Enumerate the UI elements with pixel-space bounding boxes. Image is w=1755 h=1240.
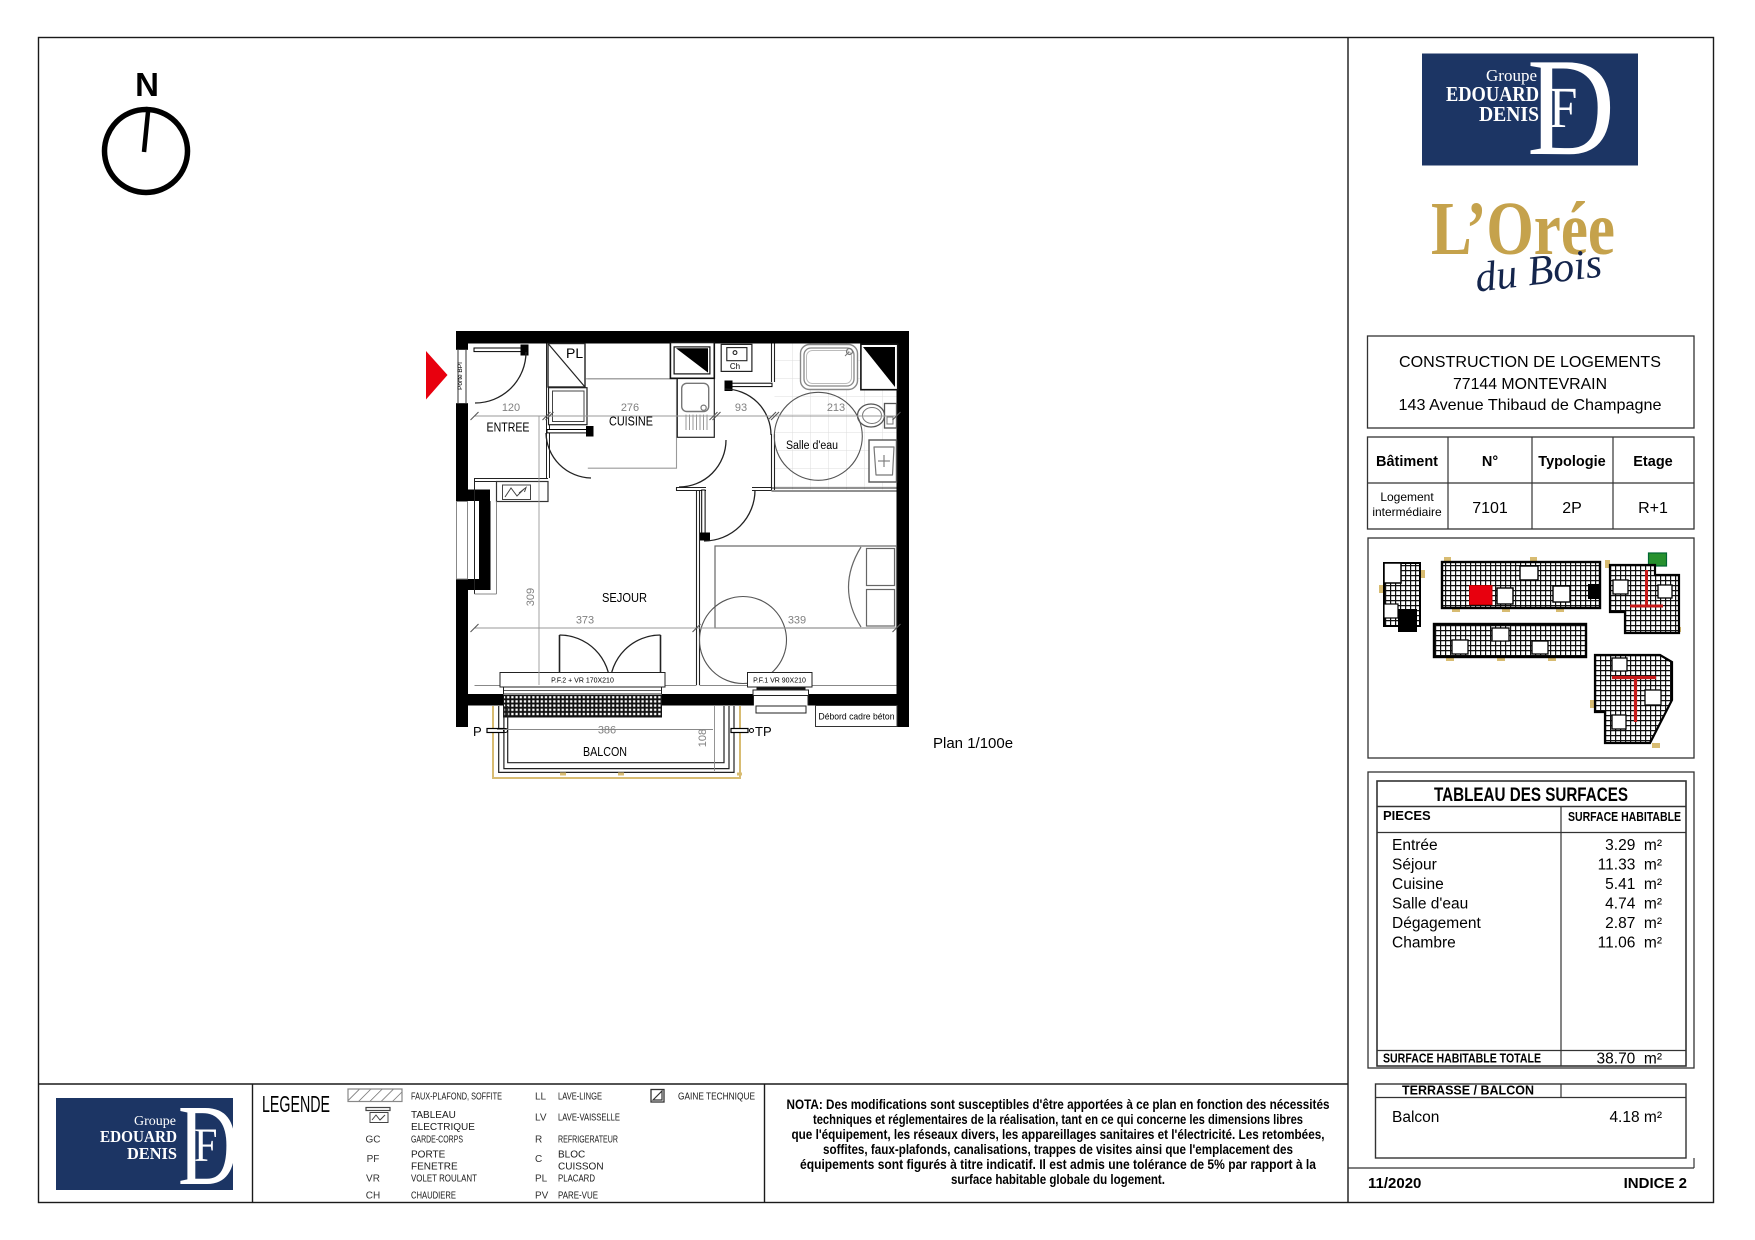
svg-text:BALCON: BALCON <box>583 744 627 759</box>
svg-text:PLACARD: PLACARD <box>558 1174 595 1185</box>
svg-text:339: 339 <box>788 615 806 627</box>
svg-text:REFRIGERATEUR: REFRIGERATEUR <box>558 1135 618 1146</box>
svg-text:386: 386 <box>598 725 616 737</box>
svg-text:SURFACE HABITABLE TOTALE: SURFACE HABITABLE TOTALE <box>1383 1052 1541 1066</box>
svg-text:3.29 m²: 3.29 m² <box>1605 837 1662 854</box>
svg-text:276: 276 <box>621 402 639 414</box>
svg-text:213: 213 <box>827 402 845 414</box>
svg-text:4.18 m²: 4.18 m² <box>1609 1109 1662 1126</box>
svg-text:2P: 2P <box>1562 500 1582 517</box>
svg-text:93: 93 <box>735 402 747 414</box>
svg-text:CUISINE: CUISINE <box>609 415 653 429</box>
svg-text:309: 309 <box>525 588 537 606</box>
svg-text:PV: PV <box>535 1191 549 1202</box>
svg-text:GARDE-CORPS: GARDE-CORPS <box>411 1135 463 1146</box>
svg-text:LEGENDE: LEGENDE <box>262 1091 330 1117</box>
svg-text:38.70 m²: 38.70 m² <box>1597 1051 1662 1068</box>
svg-text:PL: PL <box>566 345 583 361</box>
svg-text:77144 MONTEVRAIN: 77144 MONTEVRAIN <box>1453 376 1607 393</box>
svg-text:11/2020: 11/2020 <box>1368 1175 1421 1192</box>
svg-text:R+1: R+1 <box>1638 500 1668 517</box>
svg-text:CONSTRUCTION DE LOGEMENTS: CONSTRUCTION DE LOGEMENTS <box>1399 354 1661 371</box>
svg-text:PORTE: PORTE <box>411 1150 446 1161</box>
svg-text:P.F.1 VR 90X210: P.F.1 VR 90X210 <box>753 678 806 685</box>
svg-text:VOLET ROULANT: VOLET ROULANT <box>411 1174 477 1185</box>
svg-text:Logement: Logement <box>1380 490 1434 504</box>
svg-text:CH: CH <box>366 1191 380 1202</box>
svg-text:Plan 1/100e: Plan 1/100e <box>933 735 1013 752</box>
svg-text:LL: LL <box>535 1092 547 1103</box>
svg-text:Entrée: Entrée <box>1392 837 1438 854</box>
svg-text:GC: GC <box>366 1135 381 1146</box>
svg-text:PIECES: PIECES <box>1383 808 1431 823</box>
svg-text:143 Avenue Thibaud de Champagn: 143 Avenue Thibaud de Champagne <box>1399 397 1662 414</box>
svg-text:Cuisine: Cuisine <box>1392 876 1444 893</box>
svg-text:surface habitable globale du l: surface habitable globale du logement. <box>951 1172 1165 1187</box>
svg-text:Salle d'eau: Salle d'eau <box>786 440 838 452</box>
svg-text:PL: PL <box>535 1174 548 1185</box>
svg-text:BLOC: BLOC <box>558 1150 585 1161</box>
svg-text:Porte BPI: Porte BPI <box>457 362 464 390</box>
svg-text:LAVE-VAISSELLE: LAVE-VAISSELLE <box>558 1113 620 1124</box>
svg-text:techniques et réglementaires d: techniques et réglementaires de la réali… <box>813 1112 1303 1127</box>
svg-text:INDICE 2: INDICE 2 <box>1624 1175 1687 1192</box>
svg-text:11.06 m²: 11.06 m² <box>1598 935 1662 952</box>
svg-text:2.87 m²: 2.87 m² <box>1605 915 1662 932</box>
svg-text:P.F.2 + VR 170X210: P.F.2 + VR 170X210 <box>551 678 614 685</box>
svg-text:ELECTRIQUE: ELECTRIQUE <box>411 1122 475 1133</box>
svg-text:7101: 7101 <box>1472 500 1508 517</box>
svg-text:108: 108 <box>697 729 709 747</box>
svg-text:Typologie: Typologie <box>1538 454 1605 470</box>
svg-text:Balcon: Balcon <box>1392 1109 1439 1126</box>
svg-text:11.33 m²: 11.33 m² <box>1598 857 1662 874</box>
svg-text:F: F <box>194 1119 217 1172</box>
svg-text:que l'équipement, les réseaux: que l'équipement, les réseaux divers, le… <box>792 1127 1325 1142</box>
svg-text:Bâtiment: Bâtiment <box>1376 454 1438 470</box>
svg-text:N°: N° <box>1482 454 1498 470</box>
svg-text:SURFACE HABITABLE: SURFACE HABITABLE <box>1568 809 1681 824</box>
svg-text:intermédiaire: intermédiaire <box>1372 505 1442 519</box>
svg-text:Dégagement: Dégagement <box>1392 915 1481 932</box>
svg-text:Séjour: Séjour <box>1392 857 1437 874</box>
svg-text:N: N <box>135 66 159 103</box>
svg-text:Chambre: Chambre <box>1392 935 1456 952</box>
svg-text:R: R <box>535 1135 542 1146</box>
svg-text:F: F <box>1549 75 1577 140</box>
svg-text:4.74 m²: 4.74 m² <box>1605 896 1662 913</box>
svg-text:PARE-VUE: PARE-VUE <box>558 1191 598 1202</box>
svg-text:373: 373 <box>576 615 594 627</box>
svg-text:FAUX-PLAFOND, SOFFITE: FAUX-PLAFOND, SOFFITE <box>411 1092 502 1103</box>
svg-text:LV: LV <box>535 1113 547 1124</box>
svg-text:P: P <box>473 724 482 739</box>
svg-text:FENETRE: FENETRE <box>411 1162 458 1173</box>
svg-text:CHAUDIERE: CHAUDIERE <box>411 1191 456 1202</box>
svg-text:DENIS: DENIS <box>127 1144 177 1163</box>
svg-text:VR: VR <box>366 1174 380 1185</box>
svg-text:PF: PF <box>367 1154 380 1165</box>
svg-text:Etage: Etage <box>1633 454 1673 470</box>
svg-text:équipements sont figurés à tit: équipements sont figurés à titre indicat… <box>800 1157 1316 1172</box>
svg-text:CUISSON: CUISSON <box>558 1162 604 1173</box>
svg-text:TABLEAU: TABLEAU <box>411 1110 456 1121</box>
svg-text:soffites, faux-plafonds, canal: soffites, faux-plafonds, canalisations, … <box>823 1142 1293 1157</box>
svg-text:TABLEAU DES SURFACES: TABLEAU DES SURFACES <box>1434 785 1628 806</box>
svg-text:ENTREE: ENTREE <box>487 421 530 435</box>
svg-text:TP: TP <box>755 724 772 739</box>
svg-text:TERRASSE / BALCON: TERRASSE / BALCON <box>1402 1084 1534 1098</box>
svg-text:NOTA: Des modifications sont s: NOTA: Des modifications sont susceptible… <box>787 1097 1330 1112</box>
svg-text:GAINE TECHNIQUE: GAINE TECHNIQUE <box>678 1092 755 1103</box>
svg-text:SEJOUR: SEJOUR <box>602 590 647 605</box>
svg-text:LAVE-LINGE: LAVE-LINGE <box>558 1092 602 1103</box>
svg-text:C: C <box>535 1154 542 1165</box>
svg-text:Salle d'eau: Salle d'eau <box>1392 896 1468 913</box>
svg-text:Débord cadre béton: Débord cadre béton <box>819 712 895 723</box>
svg-text:120: 120 <box>502 402 520 414</box>
svg-text:5.41 m²: 5.41 m² <box>1605 876 1662 893</box>
svg-text:Ch: Ch <box>730 362 740 371</box>
